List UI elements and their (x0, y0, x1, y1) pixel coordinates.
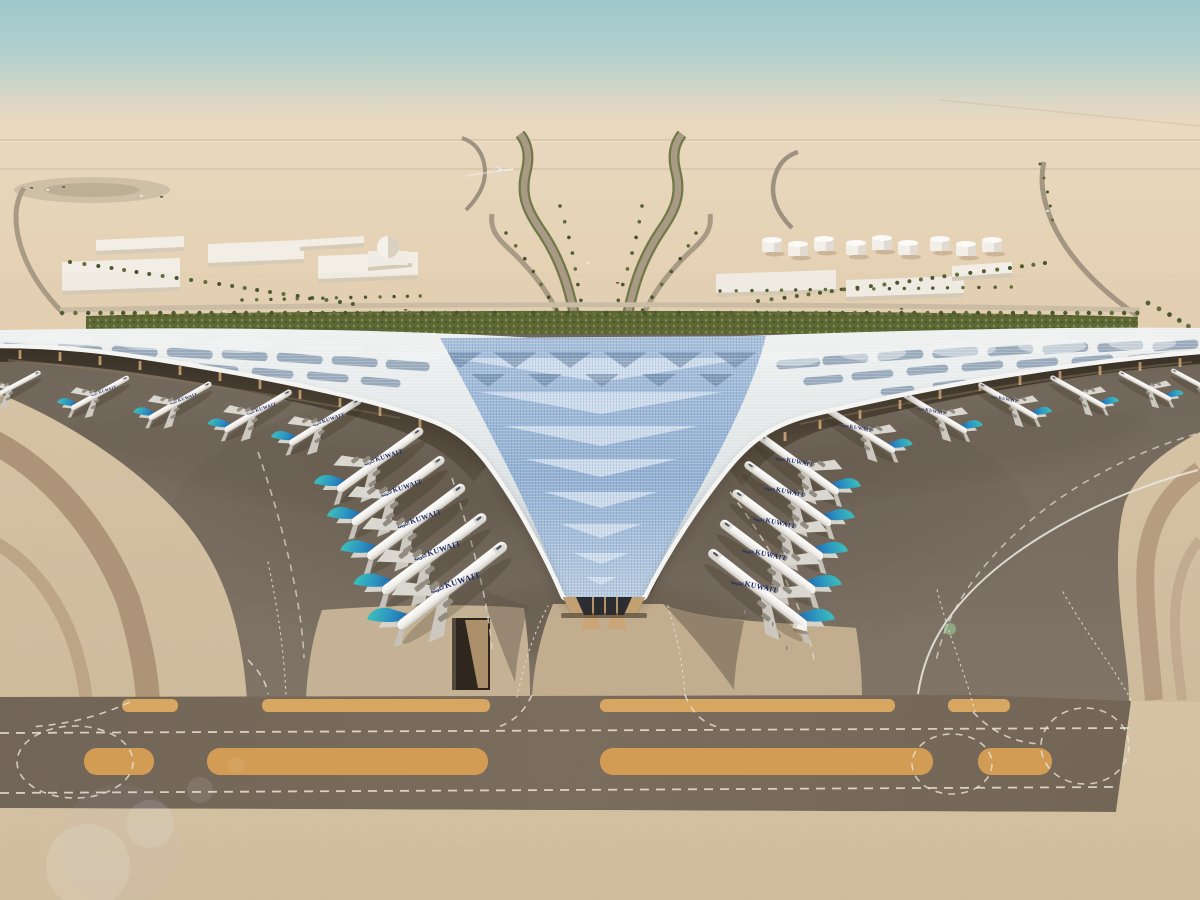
sky (0, 0, 1200, 130)
palm-tree (98, 311, 102, 315)
palm-tree (571, 251, 575, 255)
palm-tree (543, 311, 547, 315)
palm-tree (783, 296, 787, 300)
palm-tree (750, 289, 753, 292)
palm-tree (147, 272, 151, 276)
palm-tree (1011, 311, 1015, 315)
palm-tree (930, 276, 934, 280)
fuel-tank (788, 241, 811, 261)
palm-tree (1146, 301, 1151, 306)
palm-tree (158, 311, 162, 315)
palm-tree (1135, 311, 1139, 315)
palm-tree (853, 311, 857, 315)
palm-tree (814, 311, 818, 315)
palm-tree (493, 311, 497, 315)
palm-tree (982, 269, 986, 273)
palm-tree (296, 311, 300, 315)
palm-tree (735, 289, 738, 292)
distant-vehicle (586, 262, 589, 264)
palm-tree (770, 297, 774, 301)
palm-tree (378, 295, 381, 298)
palm-tree (670, 270, 674, 274)
fuel-tank (956, 241, 979, 261)
palm-tree (532, 270, 536, 274)
palm-tree (939, 311, 943, 315)
palm-tree (1037, 311, 1041, 315)
palm-tree (335, 296, 338, 299)
palm-tree (121, 311, 125, 315)
palm-tree (830, 289, 834, 293)
palm-tree (355, 311, 359, 315)
palm-tree (255, 298, 258, 301)
palm-tree (613, 314, 617, 318)
palm-tree (514, 244, 518, 248)
palm-tree (504, 231, 508, 235)
palm-tree (995, 268, 999, 272)
palm-tree (531, 311, 535, 315)
palm-tree (197, 311, 201, 315)
palm-tree (579, 299, 583, 303)
palm-tree (1063, 311, 1067, 315)
palm-tree (907, 279, 911, 283)
lens-flare-spot (228, 757, 244, 773)
palm-tree (539, 283, 543, 287)
fuel-tank (982, 237, 1005, 257)
facade-mullion (616, 597, 618, 615)
facade-mullion (592, 597, 594, 615)
palm-tree (756, 299, 760, 303)
palm-tree (408, 311, 412, 315)
palm-tree (268, 290, 272, 294)
palm-tree (788, 311, 792, 315)
palm-tree (654, 311, 658, 315)
palm-tree (840, 311, 844, 315)
palm-tree (872, 287, 875, 290)
palm-tree (283, 297, 286, 300)
palm-tree (175, 276, 179, 280)
palm-tree (309, 311, 313, 315)
palm-tree (232, 311, 236, 315)
palm-tree (617, 299, 621, 303)
palm-tree (604, 311, 608, 315)
palm-tree (1039, 163, 1042, 166)
palm-tree (506, 311, 510, 315)
palm-tree (203, 280, 207, 284)
taxiway-shoulder-marking (262, 699, 490, 712)
palm-tree (321, 297, 324, 300)
palm-tree (1177, 318, 1182, 323)
palm-tree (1051, 219, 1054, 222)
taxiway-shoulder-marking (600, 748, 933, 775)
lens-flare-spot (944, 623, 956, 635)
fuel-tank (930, 236, 953, 256)
palm-tree (961, 286, 964, 289)
palm-tree (1157, 306, 1162, 311)
palm-tree (523, 257, 527, 261)
palm-tree (406, 295, 409, 298)
palm-tree (780, 289, 783, 292)
palm-tree (998, 311, 1002, 315)
palm-tree (420, 311, 424, 315)
palm-tree (364, 296, 367, 299)
palm-tree (240, 298, 243, 301)
fuel-tank (872, 235, 895, 255)
distant-vehicle (46, 189, 49, 191)
rendering-canvas: الكويتيةKUWAITالكويتيةKUWAITالكويتيةKUWA… (0, 0, 1200, 900)
apron-post (772, 622, 773, 626)
palm-tree (1020, 264, 1024, 268)
palm-tree (185, 311, 189, 315)
palm-tree (630, 311, 634, 315)
palm-tree (583, 314, 587, 318)
palm-tree (324, 298, 328, 302)
palm-tree (1010, 285, 1013, 288)
palm-tree (917, 287, 920, 290)
palm-tree (987, 311, 991, 315)
distant-vehicle (160, 196, 163, 198)
palm-tree (558, 204, 562, 208)
palm-tree (718, 289, 721, 292)
palm-tree (765, 311, 769, 315)
canopy-column (784, 432, 787, 441)
palm-tree (660, 283, 664, 287)
palm-tree (946, 286, 949, 289)
palm-tree (244, 311, 248, 315)
palm-tree (1031, 263, 1035, 267)
apron-post (744, 610, 745, 614)
palm-tree (856, 287, 859, 290)
palm-tree (269, 298, 272, 301)
palm-tree (110, 266, 114, 270)
apron-post (779, 634, 780, 638)
palm-tree (882, 283, 886, 287)
palm-tree (634, 236, 638, 240)
palm-tree (1122, 311, 1126, 315)
palm-tree (547, 295, 551, 299)
palm-tree (729, 311, 733, 315)
palm-tree (1049, 205, 1052, 208)
palm-tree (952, 311, 956, 315)
palm-tree (818, 291, 822, 295)
palm-tree (395, 311, 399, 315)
palm-tree (641, 308, 645, 312)
distant-vehicle (1046, 210, 1049, 212)
palm-tree (349, 296, 352, 299)
palm-tree (454, 311, 458, 315)
palm-tree (60, 311, 64, 315)
palm-tree (479, 311, 483, 315)
palm-tree (638, 220, 642, 224)
palm-tree (977, 286, 980, 289)
palm-tree (807, 292, 811, 296)
warehouse-building (208, 240, 304, 267)
distant-vehicle (700, 309, 703, 311)
palm-tree (925, 311, 929, 315)
palm-tree (243, 286, 247, 290)
palm-tree (678, 257, 682, 261)
palm-tree (776, 311, 780, 315)
palm-tree (110, 311, 114, 315)
taxiway-shoulder-marking (207, 748, 488, 775)
palm-tree (887, 311, 891, 315)
palm-tree (308, 297, 311, 300)
palm-tree (824, 288, 827, 291)
palm-tree (351, 302, 355, 306)
palm-tree (171, 311, 175, 315)
palm-tree (73, 311, 77, 315)
fuel-tank (846, 240, 869, 260)
palm-tree (955, 273, 959, 277)
apron-post (786, 646, 787, 650)
distant-vehicle (900, 308, 903, 310)
palm-tree (1008, 266, 1012, 270)
palm-tree (964, 311, 968, 315)
palm-tree (694, 231, 698, 235)
palm-tree (392, 295, 395, 298)
palm-tree (865, 311, 869, 315)
palm-tree (566, 311, 570, 315)
palm-tree (630, 251, 634, 255)
palm-tree (794, 288, 797, 291)
palm-tree (1024, 311, 1028, 315)
palm-tree (189, 278, 193, 282)
palm-tree (1046, 191, 1049, 194)
palm-tree (576, 283, 580, 287)
palm-tree (677, 311, 681, 315)
taxiway-shoulder-marking (600, 699, 895, 712)
palm-tree (343, 311, 347, 315)
palm-tree (282, 292, 286, 296)
palm-tree (296, 297, 299, 300)
distant-vehicle (616, 282, 619, 284)
taxiway-shoulder-marking (84, 748, 154, 775)
fuel-tank (814, 236, 837, 256)
palm-tree (840, 288, 843, 291)
palm-tree (621, 283, 625, 287)
palm-tree (133, 311, 137, 315)
palm-tree (742, 311, 746, 315)
palm-tree (68, 260, 72, 264)
palm-tree (161, 274, 165, 278)
palm-tree (1043, 177, 1046, 180)
facade-mullion (604, 597, 606, 615)
palm-tree (381, 311, 385, 315)
palm-tree (567, 236, 571, 240)
palm-tree (256, 311, 260, 315)
palm-tree (217, 282, 221, 286)
distant-vehicle (62, 186, 65, 188)
facade-ground-shadow (561, 613, 647, 618)
palm-tree (255, 288, 259, 292)
palm-tree (888, 287, 891, 290)
palm-tree (903, 287, 906, 290)
palm-tree (618, 311, 622, 315)
palm-tree (1110, 311, 1114, 315)
palm-tree (994, 286, 997, 289)
palm-tree (1043, 261, 1047, 265)
palm-tree (86, 311, 90, 315)
palm-tree (912, 311, 916, 315)
palm-tree (650, 295, 654, 299)
palm-tree (432, 311, 436, 315)
palm-tree (795, 294, 799, 298)
palm-tree (1087, 311, 1091, 315)
palm-tree (230, 284, 234, 288)
palm-tree (563, 220, 567, 224)
palm-tree (419, 294, 422, 297)
palm-tree (626, 267, 630, 271)
palm-tree (753, 311, 757, 315)
palm-tree (1098, 311, 1102, 315)
distant-vehicle (30, 187, 33, 189)
palm-tree (320, 311, 324, 315)
palm-tree (135, 270, 139, 274)
palm-tree (689, 311, 693, 315)
palm-tree (716, 311, 720, 315)
palm-tree (338, 300, 342, 304)
palm-tree (555, 308, 559, 312)
palm-tree (942, 274, 946, 278)
palm-tree (976, 311, 980, 315)
interchange-inner (44, 183, 140, 197)
airport-aerial-rendering: الكويتيةKUWAITالكويتيةKUWAITالكويتيةKUWA… (0, 0, 1200, 900)
lens-flare-spot (60, 785, 180, 900)
palm-tree (578, 311, 582, 315)
palm-tree (283, 311, 287, 315)
fuel-tank (898, 240, 921, 260)
palm-tree (869, 284, 873, 288)
taxiway-shoulder-marking (948, 699, 1010, 712)
palm-tree (876, 311, 880, 315)
palm-tree (702, 311, 706, 315)
palm-tree (665, 311, 669, 315)
palm-tree (519, 311, 523, 315)
palm-tree (368, 311, 372, 315)
palm-tree (1167, 312, 1172, 317)
palm-tree (145, 311, 149, 315)
palm-tree (765, 289, 768, 292)
taxiway-shoulder-marking (122, 699, 178, 712)
palm-tree (1050, 311, 1054, 315)
palm-tree (122, 268, 126, 272)
palm-tree (332, 311, 336, 315)
palm-tree (968, 271, 972, 275)
distant-vehicle (404, 309, 407, 311)
distant-vehicle (222, 311, 225, 313)
palm-tree (899, 311, 903, 315)
fuel-tank (762, 237, 785, 257)
palm-tree (809, 288, 812, 291)
palm-tree (82, 262, 86, 266)
palm-tree (640, 204, 644, 208)
warehouse-building (716, 270, 836, 297)
palm-tree (270, 311, 274, 315)
palm-tree (574, 267, 578, 271)
palm-tree (1075, 311, 1079, 315)
palm-tree (919, 278, 923, 282)
palm-tree (209, 311, 213, 315)
palm-tree (801, 311, 805, 315)
palm-tree (895, 281, 899, 285)
palm-tree (466, 311, 470, 315)
distant-vehicle (140, 195, 143, 197)
lens-flare-spot (187, 777, 213, 803)
palm-tree (591, 311, 595, 315)
palm-tree (96, 264, 100, 268)
palm-tree (443, 311, 447, 315)
palm-tree (687, 244, 691, 248)
palm-tree (827, 311, 831, 315)
palm-tree (931, 286, 934, 289)
